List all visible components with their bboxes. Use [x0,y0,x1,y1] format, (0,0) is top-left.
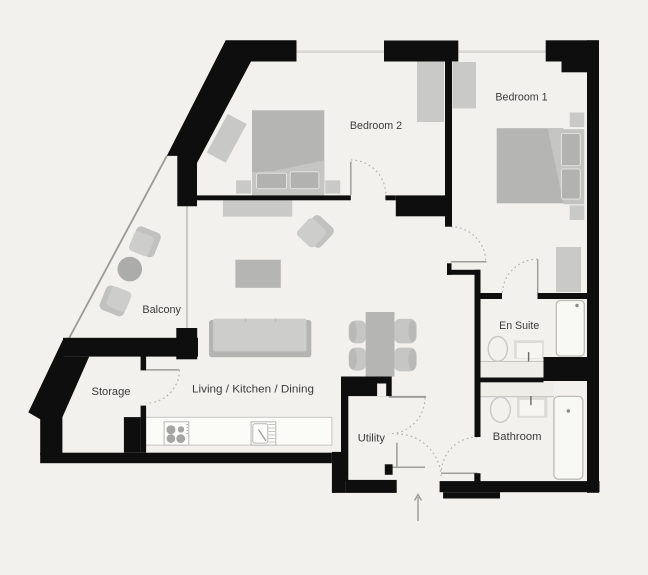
svg-text:Bedroom 2: Bedroom 2 [350,120,402,132]
svg-text:Balcony: Balcony [142,304,181,316]
svg-text:Living / Kitchen / Dining: Living / Kitchen / Dining [192,384,314,396]
svg-text:Bathroom: Bathroom [493,431,542,443]
svg-text:Storage: Storage [92,386,131,398]
svg-text:Utility: Utility [358,432,386,444]
svg-text:Bedroom 1: Bedroom 1 [495,91,547,103]
svg-text:En Suite: En Suite [499,320,539,332]
